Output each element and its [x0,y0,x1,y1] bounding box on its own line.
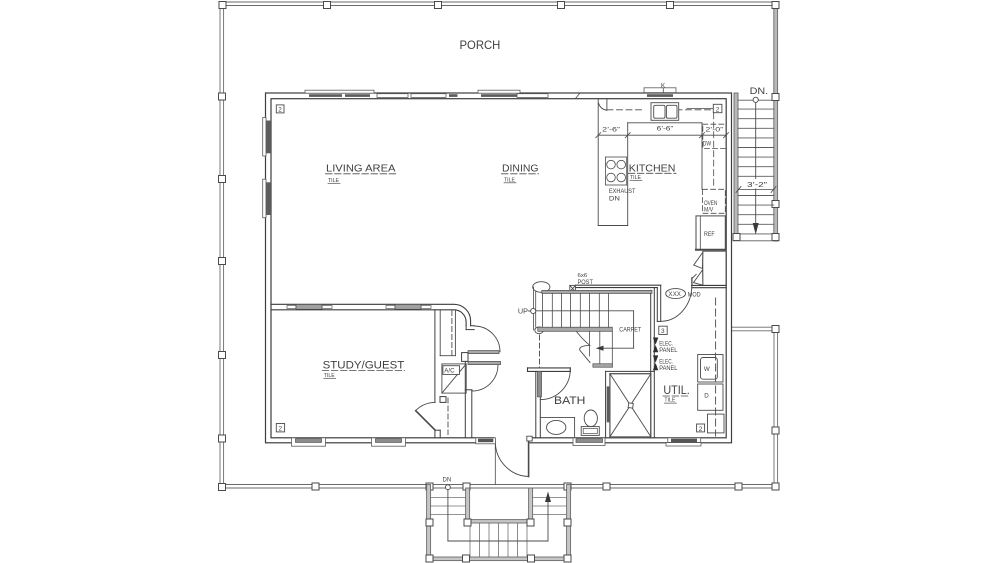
svg-text:EXHAUST: EXHAUST [609,188,636,195]
svg-text:DW: DW [703,142,712,148]
svg-text:2: 2 [278,107,282,114]
svg-text:UP: UP [518,309,528,316]
svg-text:LIVING AREA: LIVING AREA [326,162,396,174]
svg-text:DINING: DINING [502,162,539,174]
svg-text:TILE: TILE [504,177,515,183]
svg-text:2: 2 [279,426,283,433]
svg-text:A/C: A/C [444,368,455,375]
svg-text:CARPET: CARPET [619,326,641,333]
svg-text:2’-6”: 2’-6” [602,126,620,133]
svg-text:D: D [704,393,709,400]
svg-text:W: W [704,366,710,373]
svg-text:ELEC.: ELEC. [659,342,673,348]
svg-text:KITCHEN: KITCHEN [629,162,676,174]
svg-text:6x6: 6x6 [578,273,588,279]
svg-text:3’-2”: 3’-2” [747,182,768,189]
svg-text:XXX: XXX [669,292,682,298]
svg-text:UTIL.: UTIL. [663,385,689,397]
svg-text:3: 3 [661,328,665,335]
svg-text:DN.: DN. [750,86,769,97]
svg-text:PORCH: PORCH [460,38,501,52]
svg-text:2’-0”: 2’-0” [705,126,723,133]
svg-text:TILE: TILE [664,398,675,404]
svg-text:M/V: M/V [704,208,713,214]
svg-text:REF: REF [704,231,715,238]
svg-text:2: 2 [716,106,720,113]
svg-text:TILE: TILE [328,178,339,184]
svg-text:POST: POST [578,280,594,286]
svg-text:2: 2 [699,426,703,433]
svg-text:PANEL: PANEL [659,366,678,372]
svg-text:DN: DN [443,478,452,484]
svg-text:PANEL: PANEL [659,348,678,354]
svg-text:6’-6”: 6’-6” [657,126,674,133]
svg-text:TILE: TILE [630,175,641,181]
svg-text:BATH: BATH [554,395,585,407]
svg-text:OVEN: OVEN [704,201,717,207]
svg-text:DN: DN [609,196,620,203]
svg-text:MOD: MOD [688,291,701,298]
svg-text:TILE: TILE [324,373,335,379]
svg-text:STUDY/GUEST: STUDY/GUEST [323,359,405,371]
svg-text:ELEC.: ELEC. [659,360,673,366]
